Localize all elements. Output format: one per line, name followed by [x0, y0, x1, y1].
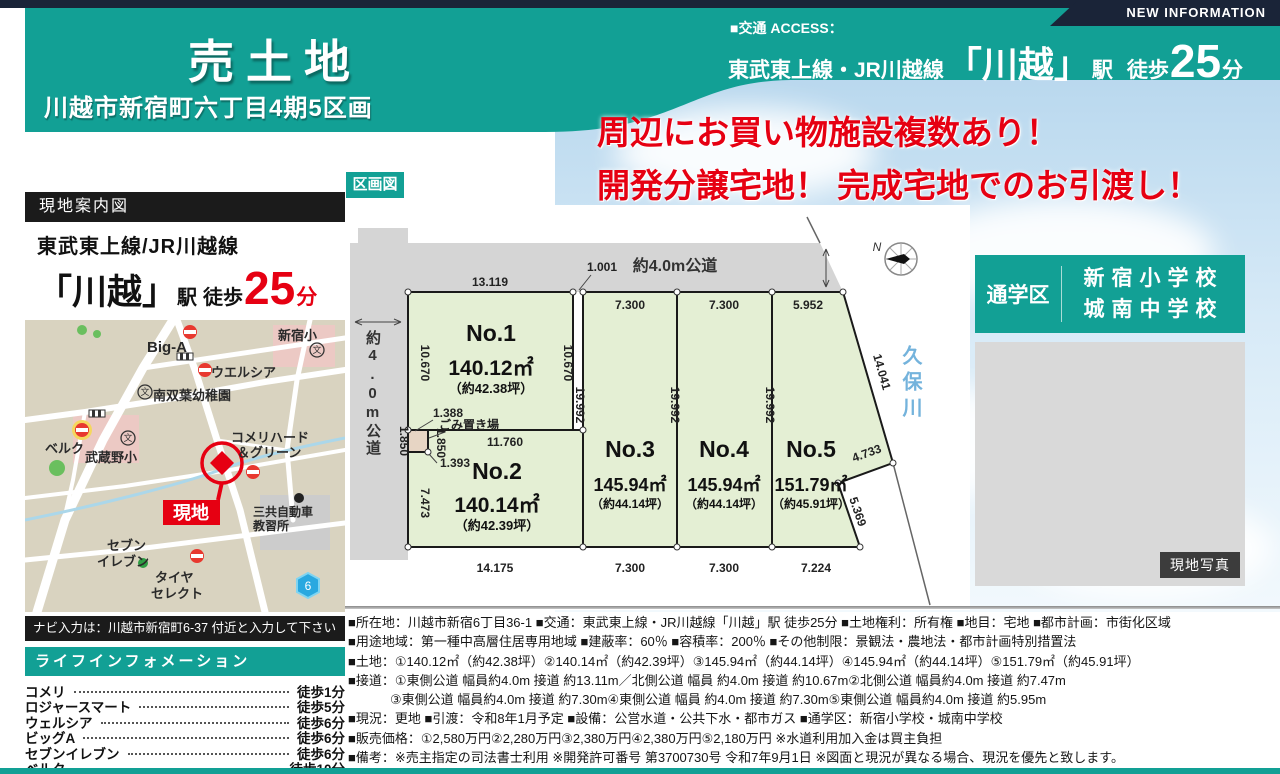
plot-map-svg: 13.119 1.001 約4.0m公道 7.300 7.300 5.952 1…: [345, 205, 970, 610]
guide-station-line: 「川越」 駅 徒歩 25 分: [37, 261, 345, 315]
dim-no2-bottom: 14.175: [477, 561, 514, 575]
svg-text:6: 6: [305, 579, 312, 593]
guide-map-title-bar: 現地案内図: [25, 192, 345, 222]
plot-map-tag: 区画図: [346, 172, 404, 198]
dim-b23: 19.992: [573, 387, 587, 424]
rail-lines: 東武東上線・JR川越線: [728, 54, 944, 84]
map-label-komeri-1: コメリハード: [231, 430, 309, 445]
list-item: セブンイレブン 徒歩6分: [25, 743, 345, 758]
dim-no2-left: 7.473: [418, 488, 432, 518]
dim-no1-right: 10.670: [561, 345, 575, 382]
top-road-label: 約4.0m公道: [633, 256, 717, 275]
minutes-unit: 分: [1222, 54, 1243, 84]
dot-leader: [83, 737, 289, 739]
access-line: 東武東上線・JR川越線 「川越」 駅 徒歩 25 分: [728, 34, 1243, 88]
lot-4-tsubo: （約44.14坪）: [685, 496, 763, 511]
map-label-seven-2: イレブン: [97, 554, 149, 569]
junior-high-school: 城南中学校: [1062, 294, 1245, 325]
dim-g-right: 1.850: [434, 428, 448, 458]
dim-no1-top: 13.119: [472, 275, 508, 289]
lot-2-no: No.2: [472, 458, 522, 484]
dim-b45: 19.992: [763, 387, 777, 424]
map-label-seven-1: セブン: [107, 538, 146, 553]
shop-icon: [198, 363, 212, 377]
site-photo-label: 現地写真: [1160, 552, 1240, 578]
bottom-teal-strip: [0, 768, 1280, 774]
guide-walk-label: 徒歩: [203, 281, 243, 310]
guide-station-unit: 駅: [177, 281, 197, 310]
dim-slant-right: 14.041: [870, 352, 894, 391]
details-divider: [345, 606, 1280, 609]
site-marker-label: 現地: [173, 502, 209, 523]
lot-5-area: 151.79㎡: [774, 474, 847, 495]
detail-line-road-1: ■接道：①東側公道 幅員約4.0m 接道 約13.11m／北側公道 幅員 約4.…: [348, 671, 1278, 690]
lot-3-no: No.3: [605, 436, 655, 462]
walk-minutes: 25: [1170, 34, 1221, 88]
dim-no1-left: 10.670: [418, 345, 432, 382]
detail-line-zoning: ■用途地域：第一種中高層住居専用地域 ■建蔽率：60％ ■容積率：200％ ■そ…: [348, 632, 1278, 651]
map-label-sankyo-1: 三共自動車: [253, 504, 313, 519]
lot-1-area: 140.12㎡: [448, 356, 533, 380]
elementary-school: 新宿小学校: [1062, 263, 1245, 294]
list-item: ロジャースマート 徒歩5分: [25, 696, 345, 711]
dim-g-diag: 1.393: [440, 456, 470, 470]
map-label-minamifutaba: 南双葉幼稚園: [153, 388, 231, 403]
dim-no4-bottom: 7.300: [709, 561, 739, 575]
life-info-title-bar: ライフインフォメーション: [25, 647, 345, 676]
guide-rail-lines: 東武東上線/JR川越線: [37, 230, 345, 259]
lot-1-no: No.1: [466, 320, 516, 346]
dot-leader: [101, 722, 289, 724]
svg-text:N: N: [873, 240, 882, 254]
dim-b34: 19.992: [668, 387, 682, 424]
property-details: ■所在地：川越市新宿6丁目36-1 ■交通：東武東上線・JR川越線「川越」駅 徒…: [348, 613, 1278, 767]
list-item: ビッグA 徒歩6分: [25, 727, 345, 742]
catch-copy: 周辺にお買い物施設複数あり！ 開発分譲宅地！ 完成宅地でのお引渡し！: [597, 106, 1200, 212]
shop-icon: [75, 423, 89, 437]
shop-icon: [183, 325, 197, 339]
svg-text:文: 文: [312, 344, 321, 355]
map-label-tire-1: タイヤ: [155, 570, 194, 585]
map-label-tire-2: セレクト: [151, 586, 203, 601]
area-map-svg: 文文文 現地 6 Big-A ウエルシア 新宿小 南双葉幼稚園 ベルク: [25, 320, 345, 612]
lot-3-area: 145.94㎡: [593, 474, 666, 495]
shop-icon: [190, 549, 204, 563]
compass-icon: N: [873, 240, 917, 275]
detail-line-location: ■所在地：川越市新宿6丁目36-1 ■交通：東武東上線・JR川越線「川越」駅 徒…: [348, 613, 1278, 632]
dim-no3-bottom: 7.300: [615, 561, 645, 575]
dim-g-left: 1.850: [397, 426, 411, 456]
map-label-biga: Big-A: [147, 339, 187, 356]
dot-leader: [128, 753, 289, 755]
school-names: 新宿小学校 城南中学校: [1062, 263, 1245, 325]
dim-no3-top: 7.300: [615, 298, 645, 312]
map-label-shinjuku-sho: 新宿小: [278, 328, 317, 343]
detail-line-road-2: ③東側公道 幅員約4.0m 接道 約7.30m④東側公道 幅員 約4.0m 接道…: [348, 690, 1278, 709]
plot-map: 13.119 1.001 約4.0m公道 7.300 7.300 5.952 1…: [345, 205, 970, 610]
dot-leader: [139, 706, 289, 708]
flyer-page: NEW INFORMATION 売土地 川越市新宿町六丁目4期5区画 ■交通 A…: [0, 0, 1280, 774]
map-label-komeri-2: ＆グリーン: [237, 445, 301, 460]
dot-leader: [74, 691, 289, 693]
page-subtitle: 川越市新宿町六丁目4期5区画: [44, 88, 373, 123]
detail-line-price: ■販売価格：①2,580万円②2,280万円③2,380万円④2,380万円⑤2…: [348, 729, 1278, 748]
map-label-welcia: ウエルシア: [211, 365, 276, 380]
guide-station-name: 「川越」: [37, 264, 177, 315]
station-info-block: 東武東上線/JR川越線 「川越」 駅 徒歩 25 分: [25, 222, 345, 320]
driving-school-dot: [294, 493, 304, 503]
guide-minutes-unit: 分: [296, 281, 317, 311]
school-zone-box: 通学区 新宿小学校 城南中学校: [975, 255, 1245, 333]
lot-4-area: 145.94㎡: [687, 474, 760, 495]
catch-line-2: 開発分譲宅地！ 完成宅地でのお引渡し！: [597, 159, 1200, 212]
dim-no5-bottom: 7.224: [801, 561, 831, 575]
map-label-musashino-sho: 武蔵野小: [85, 450, 137, 465]
life-info-list: コメリ 徒歩1分 ロジャースマート 徒歩5分 ウェルシア 徒歩6分 ビッグA 徒…: [25, 681, 345, 773]
site-photo: 現地写真: [975, 342, 1245, 586]
detail-line-land: ■土地：①140.12㎡（約42.38坪）②140.14㎡（約42.39坪）③1…: [348, 652, 1278, 671]
list-item: コメリ 徒歩1分: [25, 681, 345, 696]
detail-line-notes: ■備考：※売主指定の司法書士利用 ※開発許可番号 第3700730号 令和7年9…: [348, 748, 1278, 767]
station-unit: 駅: [1092, 54, 1113, 84]
dim-no4-top: 7.300: [709, 298, 739, 312]
list-item: ウェルシア 徒歩6分: [25, 712, 345, 727]
lot-2-area: 140.14㎡: [454, 493, 539, 517]
school-zone-label: 通学区: [975, 279, 1061, 309]
detail-line-status: ■現況：更地 ■引渡：令和8年1月予定 ■設備：公営水道・公共下水・都市ガス ■…: [348, 709, 1278, 728]
lot-3-tsubo: （約44.14坪）: [591, 496, 669, 511]
station-name: 「川越」: [946, 36, 1090, 88]
catch-line-1: 周辺にお買い物施設複数あり！: [597, 106, 1200, 159]
map-label-sankyo-2: 教習所: [252, 518, 289, 533]
guide-walk-minutes: 25: [244, 261, 295, 315]
lot-5-no: No.5: [786, 436, 836, 462]
svg-text:文: 文: [140, 386, 149, 397]
shop-icon: [246, 465, 260, 479]
river-label: 久保川: [896, 345, 925, 423]
new-information-badge: NEW INFORMATION: [1050, 0, 1280, 26]
lot-5-tsubo: （約45.91坪）: [772, 496, 850, 511]
lot-4-no: No.4: [699, 436, 749, 462]
walk-label: 徒歩: [1127, 54, 1169, 84]
dim-no2-top: 11.760: [487, 435, 523, 449]
lot-2-tsubo: （約42.39坪）: [455, 518, 540, 533]
map-label-belc: ベルク: [45, 441, 84, 456]
page-title: 売土地: [110, 26, 440, 92]
dim-no5-top: 5.952: [793, 298, 823, 312]
area-map: 文文文 現地 6 Big-A ウエルシア 新宿小 南双葉幼稚園 ベルク: [25, 320, 345, 612]
nav-input-note: ナビ入力は：川越市新宿町6-37 付近と入力して下さい: [25, 616, 345, 641]
dim-gap: 1.001: [587, 260, 617, 274]
left-road-label: 約4.0m公道: [362, 330, 383, 457]
svg-text:文: 文: [123, 432, 132, 443]
route-badge: 6: [297, 573, 319, 598]
lot-1-tsubo: （約42.38坪）: [449, 381, 534, 396]
